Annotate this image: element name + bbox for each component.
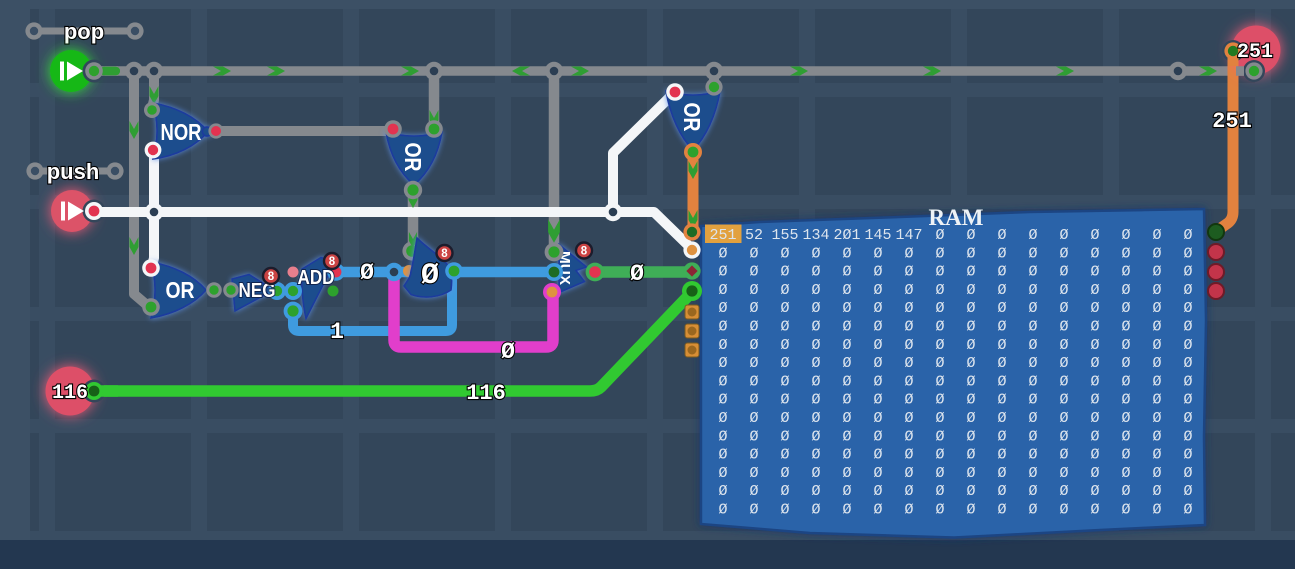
- svg-text:Ø: Ø: [997, 227, 1006, 244]
- svg-text:ØØØØØØØØØØØØØØØØ: ØØØØØØØØØØØØØØØØ: [719, 337, 1215, 354]
- svg-text:ADD: ADD: [298, 267, 335, 289]
- svg-text:ØØØØØØØØØØØØØØØØ: ØØØØØØØØØØØØØØØØ: [719, 264, 1215, 281]
- svg-text:NOR: NOR: [161, 119, 202, 145]
- svg-text:Ø: Ø: [1152, 227, 1161, 244]
- svg-text:Ø: Ø: [966, 227, 975, 244]
- svg-text:8: 8: [268, 271, 275, 283]
- svg-text:ØØØØØØØØØØØØØØØØ: ØØØØØØØØØØØØØØØØ: [719, 483, 1215, 500]
- svg-text:Ø: Ø: [630, 261, 644, 287]
- svg-text:Ø: Ø: [935, 227, 944, 244]
- svg-text:ØØØØØØØØØØØØØØØØ: ØØØØØØØØØØØØØØØØ: [719, 447, 1215, 464]
- svg-text:ØØØØØØØØØØØØØØØØ: ØØØØØØØØØØØØØØØØ: [719, 410, 1215, 427]
- svg-text:Ø: Ø: [501, 339, 515, 365]
- svg-text:Ø: Ø: [1183, 227, 1192, 244]
- svg-text:147: 147: [895, 227, 922, 244]
- svg-text:Ø: Ø: [1028, 227, 1037, 244]
- svg-text:ØØØØØØØØØØØØØØØØ: ØØØØØØØØØØØØØØØØ: [719, 502, 1215, 519]
- svg-text:ØØØØØØØØØØØØØØØØ: ØØØØØØØØØØØØØØØØ: [719, 245, 1215, 262]
- svg-text:134: 134: [802, 227, 829, 244]
- svg-text:push: push: [47, 159, 100, 184]
- svg-text:251: 251: [1237, 41, 1273, 64]
- svg-text:251: 251: [1212, 109, 1252, 134]
- svg-text:2Ø1: 2Ø1: [833, 227, 860, 244]
- svg-text:8: 8: [441, 248, 448, 260]
- svg-text:145: 145: [864, 227, 891, 244]
- svg-text:251: 251: [709, 227, 736, 244]
- svg-text:ØØØØØØØØØØØØØØØØ: ØØØØØØØØØØØØØØØØ: [719, 392, 1215, 409]
- svg-text:Ø: Ø: [421, 259, 439, 293]
- svg-text:Ø: Ø: [1121, 227, 1130, 244]
- svg-text:ØØØØØØØØØØØØØØØØ: ØØØØØØØØØØØØØØØØ: [719, 282, 1215, 299]
- svg-text:116: 116: [466, 381, 506, 406]
- svg-text:pop: pop: [64, 19, 104, 44]
- svg-text:ØØØØØØØØØØØØØØØØ: ØØØØØØØØØØØØØØØØ: [719, 300, 1215, 317]
- svg-text:8: 8: [581, 245, 588, 257]
- svg-text:ØØØØØØØØØØØØØØØØ: ØØØØØØØØØØØØØØØØ: [719, 355, 1215, 372]
- svg-text:1: 1: [330, 319, 344, 345]
- svg-text:ØØØØØØØØØØØØØØØØ: ØØØØØØØØØØØØØØØØ: [719, 373, 1215, 390]
- svg-text:ØØØØØØØØØØØØØØØØ: ØØØØØØØØØØØØØØØØ: [719, 428, 1215, 445]
- svg-text:Ø: Ø: [1059, 227, 1068, 244]
- svg-text:Ø: Ø: [360, 260, 374, 286]
- svg-text:OR: OR: [166, 277, 195, 303]
- svg-text:52: 52: [745, 227, 763, 244]
- svg-text:OR: OR: [679, 103, 705, 132]
- svg-text:116: 116: [52, 382, 88, 405]
- svg-text:8: 8: [329, 256, 336, 268]
- svg-text:OR: OR: [400, 143, 426, 172]
- svg-text:ØØØØØØØØØØØØØØØØ: ØØØØØØØØØØØØØØØØ: [719, 465, 1215, 482]
- svg-text:ØØØØØØØØØØØØØØØØ: ØØØØØØØØØØØØØØØØ: [719, 319, 1215, 336]
- svg-text:Ø: Ø: [1090, 227, 1099, 244]
- svg-text:155: 155: [771, 227, 798, 244]
